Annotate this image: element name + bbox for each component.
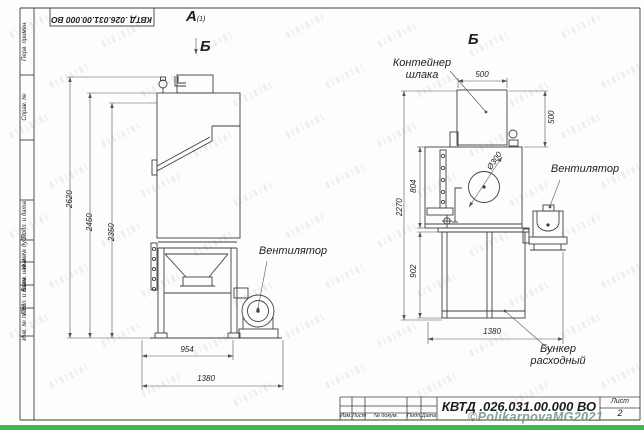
label-hopper-line1: Бункер (520, 344, 596, 356)
fan-side (523, 205, 567, 250)
view-a-label: А(1) (186, 9, 205, 25)
dim-right-902: 902 (410, 256, 418, 286)
dim-left-954: 954 (172, 346, 202, 354)
corner-designation: КВТД .026.031.00.000 ВО (52, 10, 152, 24)
author-watermark: ©PolikarpovaMG2021 (468, 411, 603, 424)
label-hopper: Бункер расходный (520, 344, 596, 367)
label-hopper-line2: расходный (520, 356, 596, 368)
dim-left-2450: 2450 (86, 207, 94, 237)
view-a-letter: А (186, 8, 197, 25)
view-b-title: Б (468, 32, 479, 48)
dim-right-804: 804 (410, 171, 418, 201)
stamp-field-perv-primen: Перв. примен. (22, 11, 32, 71)
stamp-field-inv-podl: Инв. № подл. (22, 292, 32, 352)
tb-col-data: Дата (421, 414, 437, 420)
dim-left-2350: 2350 (108, 217, 116, 247)
bottom-green-strip (0, 425, 644, 430)
view-b-marker: Б (200, 39, 211, 55)
label-slag-container-line1: Контейнер (390, 58, 454, 70)
dim-left-2620: 2620 (66, 184, 74, 214)
dim-left-1380: 1380 (188, 375, 224, 383)
tb-sheet-label: Лист (600, 398, 640, 405)
drawing-sheet: { "sheet": { "designation": "КВТД .026.0… (0, 0, 644, 430)
left-view-dimensions (67, 38, 283, 390)
label-slag-container-line2: шлака (390, 70, 454, 82)
slag-container-outline (457, 90, 507, 145)
tb-col-dokum: № докум. (365, 414, 407, 420)
dim-right-500-top: 500 (467, 71, 497, 79)
label-fan-left: Вентилятор (256, 246, 330, 258)
left-view (150, 75, 282, 338)
dim-right-2270: 2270 (396, 190, 404, 224)
label-fan-right: Вентилятор (548, 164, 622, 176)
right-view (425, 90, 567, 318)
stamp-field-sprav-no: Справ. № (22, 77, 32, 137)
fan-scroll (234, 288, 278, 338)
tb-col-list: Лист (352, 414, 365, 420)
view-a-subscript: (1) (197, 16, 206, 23)
tb-sheet-number: 2 (600, 409, 640, 418)
tb-col-podp: Подп. (407, 414, 421, 420)
dim-right-500-side: 500 (548, 102, 556, 132)
label-slag-container: Контейнер шлака (390, 58, 454, 81)
dim-right-1380: 1380 (474, 328, 510, 336)
tb-col-izm: Изм. (340, 414, 352, 420)
